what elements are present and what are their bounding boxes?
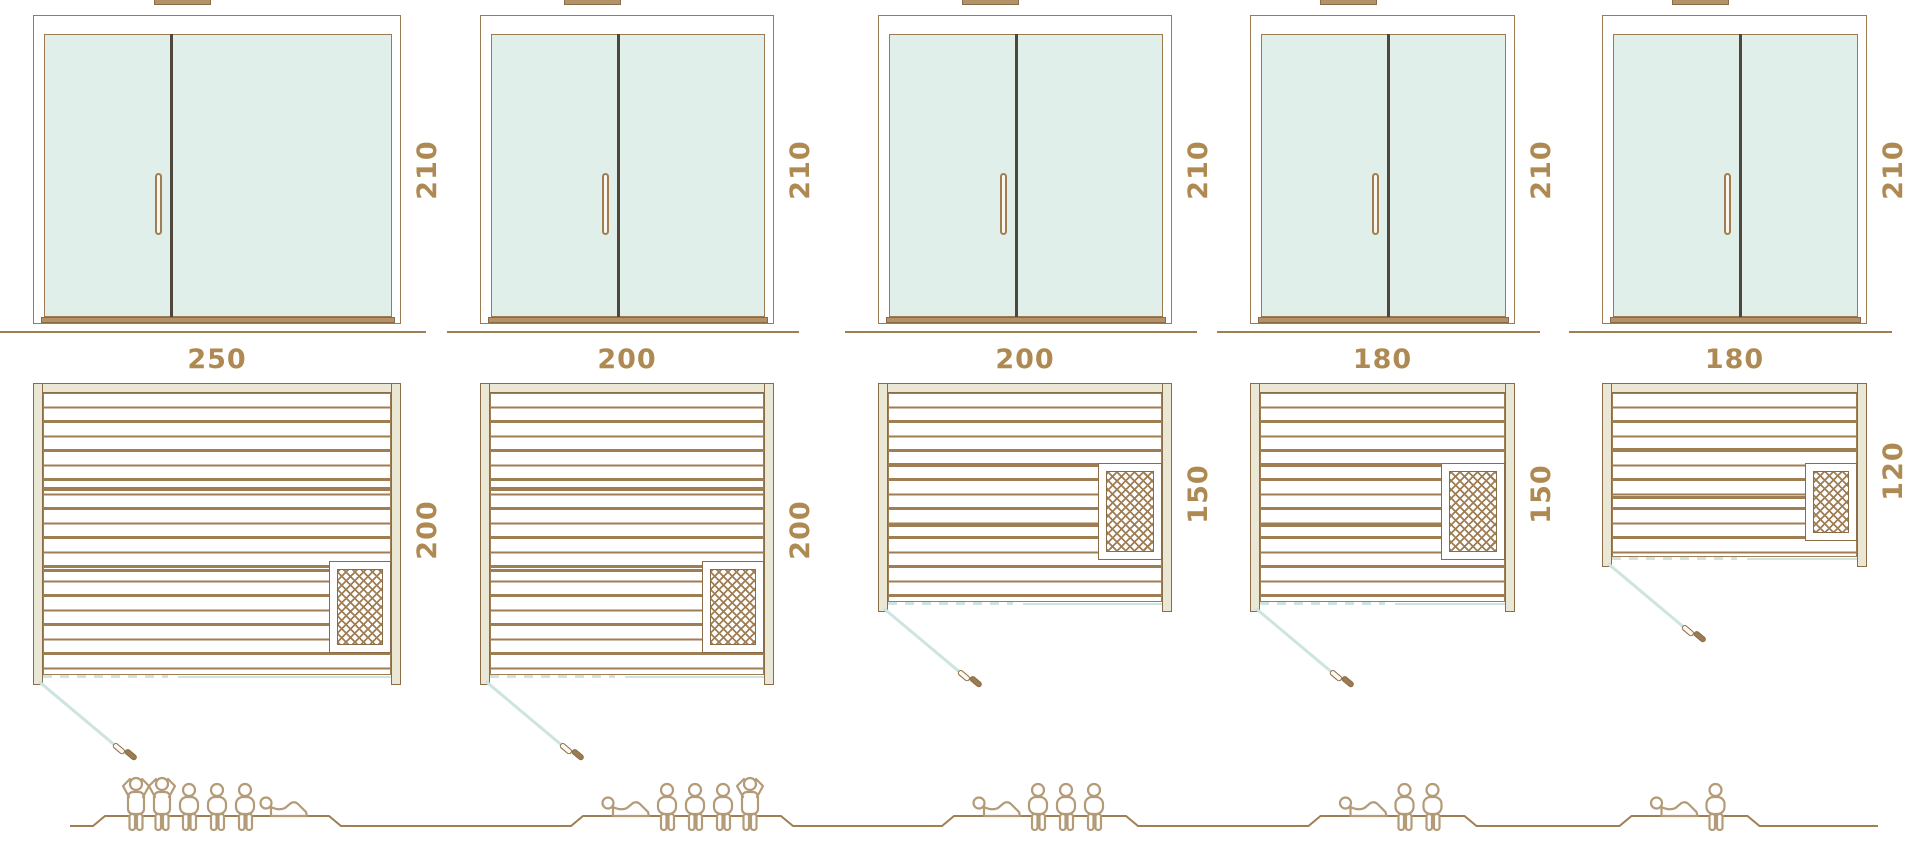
door-handle-icon xyxy=(1000,173,1007,235)
bench-edge-line xyxy=(43,487,391,491)
bench-edge-line xyxy=(1612,448,1857,452)
sauna-heater xyxy=(1441,463,1505,560)
width-dimension-label: 200 xyxy=(582,344,672,376)
plan-wall-top xyxy=(1250,383,1515,393)
floor-plan xyxy=(1602,383,1867,649)
door-opening-dashed-line xyxy=(888,602,1013,605)
bench-edge-line xyxy=(43,569,391,572)
ground-line xyxy=(1569,331,1892,333)
handle-cap xyxy=(570,748,585,762)
door-opening-dashed-line xyxy=(43,675,168,678)
sauna-front-elevation xyxy=(1602,15,1867,324)
door-opening-dashed-line xyxy=(1612,557,1737,560)
handle-cap xyxy=(112,742,127,756)
door-swing-line xyxy=(485,680,572,754)
bench-edge-line xyxy=(1260,524,1505,527)
door-opening-dashed-line xyxy=(1260,602,1385,605)
sauna-column: 210 180 150 xyxy=(0,0,1920,856)
width-dimension-label: 180 xyxy=(1690,344,1780,376)
bench-edge-line xyxy=(1260,463,1505,467)
floor-plan xyxy=(33,383,401,767)
sauna-front-elevation xyxy=(33,15,401,324)
bench-edge-line xyxy=(1612,496,1857,499)
door-leaf-glass xyxy=(491,34,618,317)
door-sill xyxy=(488,317,768,323)
person-standing-icon xyxy=(123,778,149,830)
fixed-glass-panel xyxy=(1740,34,1858,317)
plan-wall-left xyxy=(480,383,490,685)
plan-door-handle-icon xyxy=(956,666,983,691)
height-dimension-label: 210 xyxy=(1878,125,1910,215)
ground-line xyxy=(0,331,426,333)
handle-cap xyxy=(1681,624,1696,638)
door-sill xyxy=(1610,317,1861,323)
plan-door-handle-icon xyxy=(558,739,585,764)
plan-wall-top xyxy=(33,383,401,393)
plan-wall-top xyxy=(878,383,1172,393)
bench-edge-line xyxy=(888,463,1162,467)
depth-dimension-label: 120 xyxy=(1878,426,1910,516)
heater-grate-icon xyxy=(710,569,756,645)
door-handle-icon xyxy=(1724,173,1731,235)
plan-wall-right xyxy=(764,383,774,685)
roof-vent-bar xyxy=(962,0,1019,5)
plan-wall-left xyxy=(33,383,43,685)
floor-plan xyxy=(480,383,774,767)
ground-line xyxy=(845,331,1197,333)
heater-grate-icon xyxy=(1106,471,1154,552)
bench-edge-line xyxy=(490,487,764,491)
height-dimension-label: 210 xyxy=(1183,125,1215,215)
height-dimension-label: 210 xyxy=(785,125,817,215)
glass-wall-line xyxy=(1395,603,1505,606)
bench-edge-line xyxy=(888,524,1162,527)
glass-wall-line xyxy=(625,676,764,679)
bench-planks xyxy=(43,393,391,675)
door-opening-dashed-line xyxy=(490,675,615,678)
door-handle-icon xyxy=(602,173,609,235)
width-dimension-label: 250 xyxy=(172,344,262,376)
height-dimension-label: 210 xyxy=(412,125,444,215)
handle-cap xyxy=(1692,630,1707,644)
fixed-glass-panel xyxy=(618,34,765,317)
person-lying-icon xyxy=(1651,798,1698,817)
ground-line xyxy=(1217,331,1540,333)
person-lying-icon xyxy=(974,798,1021,817)
person-lying-icon xyxy=(261,798,308,817)
bench-planks xyxy=(888,393,1162,602)
bench-planks xyxy=(490,393,764,675)
person-seated-icon xyxy=(236,784,254,830)
sauna-front-elevation xyxy=(1250,15,1515,324)
handle-cap xyxy=(1329,669,1344,683)
sauna-front-elevation xyxy=(878,15,1172,324)
plan-wall-right xyxy=(391,383,401,685)
sauna-heater xyxy=(1805,463,1857,541)
sauna-column: 210 200 200 xyxy=(0,0,1920,856)
sauna-column: 210 250 200 xyxy=(0,0,1920,856)
roof-vent-bar xyxy=(1672,0,1729,5)
depth-dimension-label: 200 xyxy=(785,485,817,575)
door-sill xyxy=(886,317,1166,323)
person-seated-icon xyxy=(180,784,198,830)
people-baseline xyxy=(70,816,1878,826)
door-divider-line xyxy=(617,34,620,317)
bench-planks xyxy=(1260,393,1505,602)
person-seated-icon xyxy=(686,784,704,830)
plan-wall-top xyxy=(1602,383,1867,393)
plan-door-handle-icon xyxy=(1328,666,1355,691)
width-dimension-label: 200 xyxy=(980,344,1070,376)
handle-cap xyxy=(968,675,983,689)
person-standing-icon xyxy=(149,778,175,830)
door-swing-line xyxy=(1607,562,1694,636)
door-leaf-glass xyxy=(44,34,171,317)
fixed-glass-panel xyxy=(1016,34,1163,317)
fixed-glass-panel xyxy=(171,34,392,317)
handle-cap xyxy=(559,742,574,756)
sauna-size-diagram: 210 250 200 xyxy=(0,0,1920,856)
door-leaf-glass xyxy=(1261,34,1388,317)
door-divider-line xyxy=(1015,34,1018,317)
roof-vent-bar xyxy=(1320,0,1377,5)
person-lying-icon xyxy=(1340,798,1387,817)
sauna-front-elevation xyxy=(480,15,774,324)
person-seated-icon xyxy=(658,784,676,830)
handle-cap xyxy=(957,669,972,683)
plan-wall-right xyxy=(1857,383,1867,567)
sauna-heater xyxy=(1098,463,1162,560)
door-leaf-glass xyxy=(889,34,1016,317)
glass-wall-line xyxy=(1023,603,1162,606)
door-sill xyxy=(41,317,395,323)
plan-wall-top xyxy=(480,383,774,393)
person-seated-icon xyxy=(1396,784,1414,830)
door-handle-icon xyxy=(1372,173,1379,235)
glass-wall-line xyxy=(178,676,391,679)
depth-dimension-label: 200 xyxy=(412,485,444,575)
plan-door-handle-icon xyxy=(111,739,138,764)
person-lying-icon xyxy=(603,798,650,817)
height-dimension-label: 210 xyxy=(1526,125,1558,215)
floor-plan xyxy=(1250,383,1515,694)
door-swing-line xyxy=(38,680,125,754)
person-seated-icon xyxy=(1057,784,1075,830)
door-divider-line xyxy=(1387,34,1390,317)
depth-dimension-label: 150 xyxy=(1183,449,1215,539)
roof-vent-bar xyxy=(154,0,211,5)
sauna-column: 210 200 150 xyxy=(0,0,1920,856)
heater-grate-icon xyxy=(1449,471,1497,552)
sauna-heater xyxy=(702,561,764,653)
capacity-figures xyxy=(0,770,1920,856)
door-sill xyxy=(1258,317,1509,323)
bench-edge-line xyxy=(490,569,764,572)
plan-wall-right xyxy=(1162,383,1172,612)
handle-cap xyxy=(1340,675,1355,689)
person-seated-icon xyxy=(1085,784,1103,830)
person-standing-icon xyxy=(737,778,763,830)
door-swing-line xyxy=(883,607,970,681)
sauna-column: 210 180 120 xyxy=(0,0,1920,856)
door-divider-line xyxy=(170,34,173,317)
door-swing-line xyxy=(1255,607,1342,681)
plan-wall-left xyxy=(1250,383,1260,612)
plan-door-handle-icon xyxy=(1680,621,1707,646)
handle-cap xyxy=(123,748,138,762)
plan-wall-left xyxy=(1602,383,1612,567)
sauna-heater xyxy=(329,561,391,653)
glass-wall-line xyxy=(1747,558,1857,561)
bench-planks xyxy=(1612,393,1857,557)
floor-plan xyxy=(878,383,1172,694)
ground-line xyxy=(447,331,799,333)
width-dimension-label: 180 xyxy=(1338,344,1428,376)
roof-vent-bar xyxy=(564,0,621,5)
door-leaf-glass xyxy=(1613,34,1740,317)
person-seated-icon xyxy=(1707,784,1725,830)
heater-grate-icon xyxy=(1813,471,1849,533)
heater-grate-icon xyxy=(337,569,383,645)
door-handle-icon xyxy=(155,173,162,235)
person-seated-icon xyxy=(714,784,732,830)
plan-wall-left xyxy=(878,383,888,612)
fixed-glass-panel xyxy=(1388,34,1506,317)
person-seated-icon xyxy=(208,784,226,830)
plan-wall-right xyxy=(1505,383,1515,612)
depth-dimension-label: 150 xyxy=(1526,449,1558,539)
person-seated-icon xyxy=(1029,784,1047,830)
person-seated-icon xyxy=(1424,784,1442,830)
door-divider-line xyxy=(1739,34,1742,317)
